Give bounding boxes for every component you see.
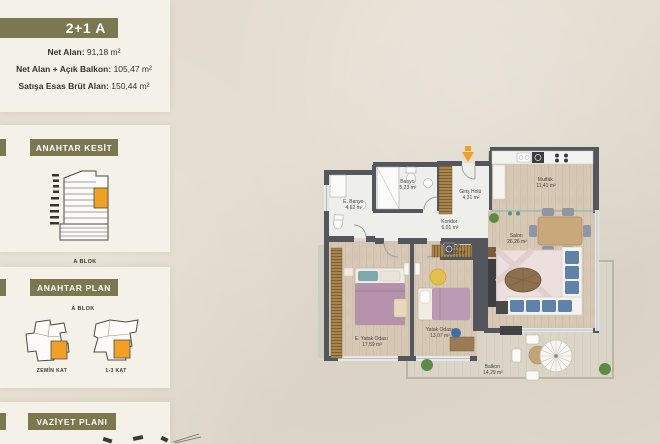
gross-area-label: Satışa Esas Brüt Alan: — [18, 81, 108, 91]
net-plus-balcony-line: Net Alan + Açık Balkon: 105,47 m² — [0, 61, 168, 78]
net-area-line: Net Alan: 91,18 m² — [0, 44, 168, 61]
highlighted-unit — [51, 341, 67, 359]
fridge-cabinet — [493, 165, 505, 199]
parasol-icon — [540, 340, 572, 372]
site-plan-bar-stub — [0, 413, 6, 430]
gross-area-value: 150,44 m² — [111, 81, 149, 91]
net-area-label: Net Alan: — [48, 47, 85, 57]
brochure-page: Net Alan: 91,18 m² Net Alan + Açık Balko… — [0, 0, 660, 444]
tv-unit — [488, 259, 496, 307]
area-info-list: Net Alan: 91,18 m² Net Alan + Açık Balko… — [0, 44, 168, 95]
upper-floor-caption: 1-3 KAT — [88, 368, 144, 374]
radiator — [404, 263, 409, 275]
net-plus-balcony-label: Net Alan + Açık Balkon: — [16, 64, 111, 74]
desk — [450, 337, 474, 351]
building-section-diagram — [48, 168, 122, 256]
key-plan-title: ANAHTAR PLAN — [30, 279, 118, 296]
key-section-title: ANAHTAR KESİT — [30, 139, 118, 156]
radiator — [415, 263, 420, 275]
toilet-tank-icon — [406, 167, 416, 173]
side-table — [496, 301, 508, 314]
corridor-floor — [375, 211, 488, 241]
room-label-balcony: Balkon 14,29 m² — [483, 364, 503, 376]
room-label-bathroom: Banyo 5,23 m² — [400, 179, 417, 191]
kesit-block-label: A BLOK — [0, 259, 170, 265]
key-section-bar-stub — [0, 139, 6, 156]
gross-area-line: Satışa Esas Brüt Alan: 150,44 m² — [0, 78, 168, 95]
armchair — [394, 299, 407, 317]
unit-title: 2+1 A — [0, 18, 118, 38]
entrance-arrow-icon — [462, 146, 474, 162]
round-chair — [430, 269, 446, 285]
room-label-kitchen: Mutfak 11,41 m² — [536, 177, 556, 189]
key-plan-upper-floor-diagram — [86, 318, 142, 364]
ground-floor-caption: ZEMİN KAT — [20, 368, 84, 374]
nightstand — [344, 268, 353, 276]
plant — [489, 213, 499, 223]
net-area-value: 91,18 m² — [87, 47, 121, 57]
room-label-entry-hall: Giriş Holü 4,31 m² — [459, 189, 482, 201]
highlighted-floors — [94, 188, 108, 208]
key-plan-bar-stub — [0, 279, 6, 296]
washbasin-icon — [424, 179, 433, 188]
site-plan-title: VAZİYET PLANI — [28, 413, 116, 430]
key-plan-ground-floor-diagram — [24, 318, 78, 364]
floor-plan: E. Banyo 4,62 m² Banyo 5,23 m² Giriş Hol… — [310, 141, 622, 405]
plant — [599, 363, 611, 375]
net-plus-balcony-value: 105,47 m² — [114, 64, 152, 74]
single-bed — [418, 288, 470, 320]
floor-tick-labels — [50, 174, 59, 225]
ensuite-shower-icon — [330, 175, 346, 197]
dining-table — [538, 217, 582, 245]
highlighted-unit — [114, 340, 130, 358]
site-plan-preview — [95, 433, 205, 444]
unit-info-panel: Net Alan: 91,18 m² Net Alan + Açık Balko… — [0, 0, 170, 112]
plant — [421, 359, 433, 371]
plan-block-label: A BLOK — [0, 306, 166, 312]
room-label-corridor: Koridor 6,01 m² — [441, 219, 459, 231]
oven-icon — [532, 152, 544, 163]
room-label-ensuite-bath: E. Banyo 4,62 m² — [343, 199, 365, 211]
